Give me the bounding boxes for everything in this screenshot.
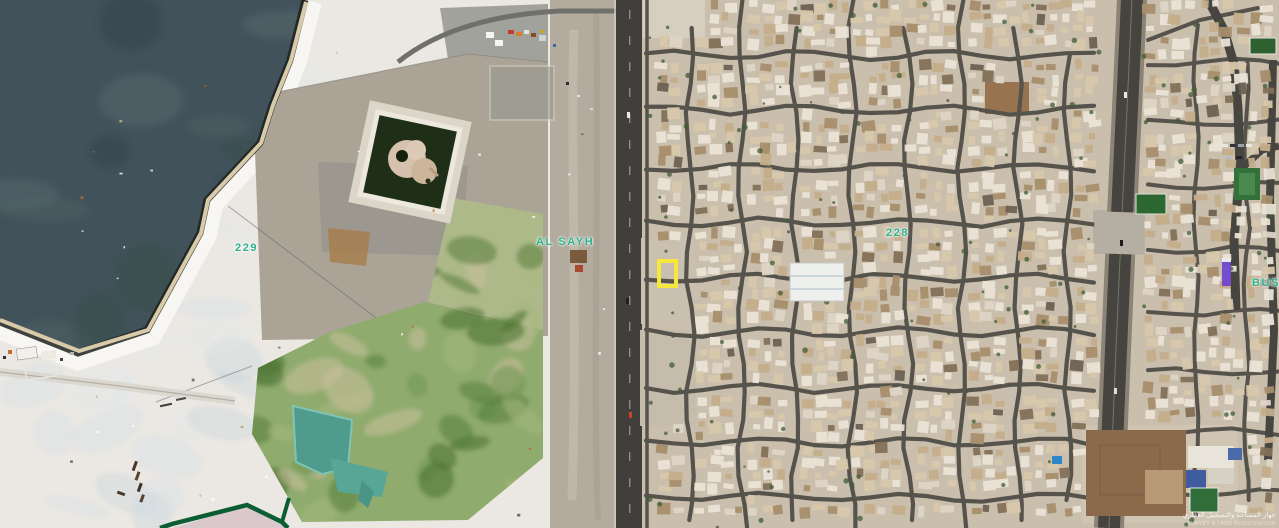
highway bbox=[615, 0, 644, 528]
roadside-dirt-band bbox=[550, 0, 618, 528]
graded-pad bbox=[490, 66, 554, 120]
imagery-watermark: جهاز المساحة والتسجيل العقاري SURVEY & L… bbox=[1183, 511, 1276, 527]
green-roof-court bbox=[1250, 38, 1276, 54]
watermark-line1: جهاز المساحة والتسجيل العقاري bbox=[1183, 511, 1276, 520]
island-hole bbox=[396, 150, 408, 162]
watermark-line2: SURVEY & LAND REGISTRATION bbox=[1183, 521, 1276, 528]
map-label-al-sayh: AL SAYH bbox=[536, 236, 594, 248]
pool bbox=[1052, 456, 1062, 464]
purple-structure bbox=[1222, 258, 1231, 286]
map-label-busaiteen: BUS bbox=[1252, 277, 1279, 289]
satellite-imagery bbox=[0, 0, 1279, 528]
map-label-block-228: 228 bbox=[886, 227, 909, 239]
selection-marker[interactable] bbox=[657, 259, 678, 288]
map-label-block-229: 229 bbox=[235, 242, 258, 254]
large-white-building bbox=[790, 263, 844, 301]
satellite-map-view[interactable]: 229 AL SAYH 228 BUS جهاز المساحة والتسجي… bbox=[0, 0, 1279, 528]
sports-court bbox=[1190, 488, 1218, 512]
green-court-1 bbox=[1136, 194, 1166, 214]
brown-patch bbox=[328, 228, 370, 266]
isolated-building bbox=[570, 250, 587, 263]
